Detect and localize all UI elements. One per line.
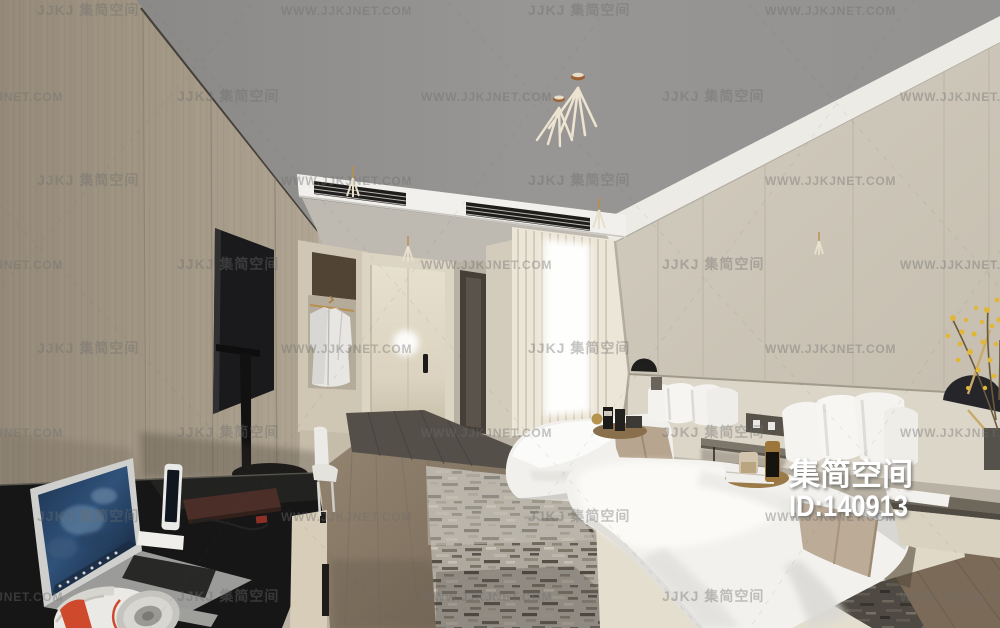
svg-text:WWW.JJKJNET.COM: WWW.JJKJNET.COM	[281, 510, 412, 524]
svg-text:JJKJ 集简空间: JJKJ 集简空间	[662, 588, 764, 604]
svg-text:JJKJ 集简空间: JJKJ 集简空间	[177, 588, 279, 604]
svg-text:WWW.JJKJNET.COM: WWW.JJKJNET.COM	[900, 258, 1000, 272]
svg-text:WWW.JJKJNET.COM: WWW.JJKJNET.COM	[765, 342, 896, 356]
svg-text:WWW.JJKJNET.COM: WWW.JJKJNET.COM	[765, 4, 896, 18]
svg-text:WWW.JJKJNET.COM: WWW.JJKJNET.COM	[900, 590, 1000, 604]
svg-text:JJKJ 集简空间: JJKJ 集简空间	[37, 172, 139, 188]
svg-text:WWW.JJKJNET.COM: WWW.JJKJNET.COM	[0, 90, 63, 104]
svg-text:JJKJ 集简空间: JJKJ 集简空间	[662, 88, 764, 104]
svg-text:WWW.JJKJNET.COM: WWW.JJKJNET.COM	[765, 174, 896, 188]
svg-text:JJKJ 集简空间: JJKJ 集简空间	[37, 508, 139, 524]
svg-text:WWW.JJKJNET.COM: WWW.JJKJNET.COM	[421, 426, 552, 440]
svg-text:WWW.JJKJNET.COM: WWW.JJKJNET.COM	[421, 590, 552, 604]
svg-text:JJKJ 集简空间: JJKJ 集简空间	[528, 340, 630, 356]
svg-text:ID:140913: ID:140913	[789, 490, 908, 523]
svg-text:JJKJ 集简空间: JJKJ 集简空间	[177, 256, 279, 272]
svg-text:集简空间: 集简空间	[788, 457, 913, 492]
svg-text:JJKJ 集简空间: JJKJ 集简空间	[528, 508, 630, 524]
svg-text:WWW.JJKJNET.COM: WWW.JJKJNET.COM	[281, 342, 412, 356]
svg-text:JJKJ 集简空间: JJKJ 集简空间	[177, 88, 279, 104]
svg-text:WWW.JJKJNET.COM: WWW.JJKJNET.COM	[421, 90, 552, 104]
svg-text:JJKJ 集简空间: JJKJ 集简空间	[662, 424, 764, 440]
svg-text:WWW.JJKJNET.COM: WWW.JJKJNET.COM	[281, 174, 412, 188]
svg-text:JJKJ 集简空间: JJKJ 集简空间	[37, 2, 139, 18]
svg-text:WWW.JJKJNET.COM: WWW.JJKJNET.COM	[900, 90, 1000, 104]
svg-text:JJKJ 集简空间: JJKJ 集简空间	[662, 256, 764, 272]
svg-text:WWW.JJKJNET.COM: WWW.JJKJNET.COM	[0, 426, 63, 440]
svg-text:JJKJ 集简空间: JJKJ 集简空间	[37, 340, 139, 356]
svg-text:WWW.JJKJNET.COM: WWW.JJKJNET.COM	[900, 426, 1000, 440]
svg-text:JJKJ 集简空间: JJKJ 集简空间	[528, 2, 630, 18]
svg-text:WWW.JJKJNET.COM: WWW.JJKJNET.COM	[0, 590, 63, 604]
svg-text:JJKJ 集简空间: JJKJ 集简空间	[528, 172, 630, 188]
svg-text:WWW.JJKJNET.COM: WWW.JJKJNET.COM	[421, 258, 552, 272]
svg-text:WWW.JJKJNET.COM: WWW.JJKJNET.COM	[0, 258, 63, 272]
svg-text:JJKJ 集简空间: JJKJ 集简空间	[177, 424, 279, 440]
svg-text:WWW.JJKJNET.COM: WWW.JJKJNET.COM	[281, 4, 412, 18]
